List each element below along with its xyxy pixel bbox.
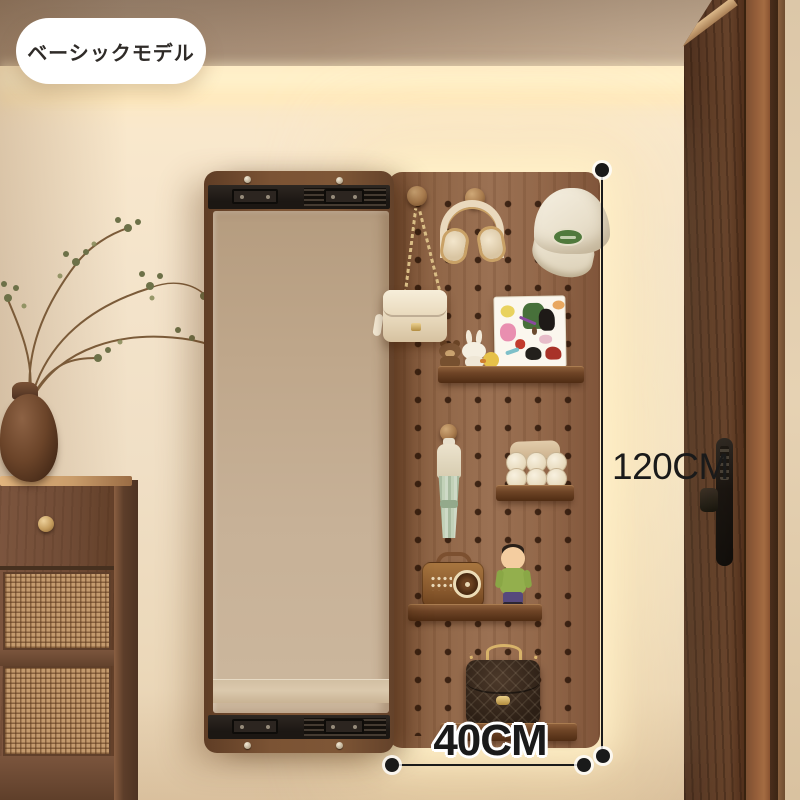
dimension-endpoint-dot bbox=[385, 758, 399, 772]
mirror-rail-top bbox=[208, 185, 390, 209]
cabinet-knob bbox=[38, 516, 54, 532]
umbrella-strap bbox=[440, 500, 458, 508]
rail-bracket bbox=[232, 719, 278, 734]
entry-door bbox=[678, 0, 800, 800]
handbag-flap bbox=[383, 290, 447, 317]
cabinet-drawer-groove bbox=[0, 566, 114, 570]
quilted-handbag-flap bbox=[466, 666, 540, 694]
mirror-rail-bottom bbox=[208, 715, 390, 739]
mirror-glass bbox=[213, 211, 389, 713]
mirror-reflection-skirting bbox=[213, 679, 389, 703]
cabinet-rail bbox=[0, 650, 114, 666]
doodle-teal-stroke bbox=[505, 347, 520, 355]
cap-logo-patch bbox=[552, 228, 584, 246]
screw bbox=[244, 176, 251, 183]
model-badge-label: ベーシックモデル bbox=[27, 37, 195, 66]
rail-bracket bbox=[324, 719, 364, 734]
cabinet-rattan-panel bbox=[3, 572, 111, 650]
doodle-trunk bbox=[532, 327, 537, 335]
model-badge: ベーシックモデル bbox=[16, 18, 206, 84]
cabinet-side bbox=[114, 480, 138, 800]
pegboard-shelf bbox=[438, 366, 584, 383]
door-stile bbox=[770, 0, 778, 800]
handbag-clasp bbox=[411, 323, 421, 331]
cabinet-bottom bbox=[0, 756, 114, 800]
doodle-flower bbox=[500, 323, 516, 341]
screw bbox=[336, 177, 343, 184]
quilted-handbag-clasp bbox=[496, 696, 510, 705]
doodle-dog bbox=[545, 346, 561, 359]
dimension-endpoint-dot bbox=[596, 749, 610, 763]
rail-bracket bbox=[232, 189, 278, 204]
doodle-sun bbox=[501, 305, 515, 317]
door-jamb bbox=[778, 0, 785, 800]
folded-umbrella-top bbox=[437, 444, 461, 478]
radio-dial bbox=[453, 570, 481, 598]
door-handle bbox=[700, 488, 718, 512]
doodle-arch bbox=[539, 335, 552, 344]
vase bbox=[0, 394, 58, 482]
vintage-radio bbox=[422, 562, 484, 608]
rail-bracket bbox=[324, 189, 364, 204]
wooden-hook bbox=[407, 186, 427, 206]
cabinet-rattan-panel bbox=[3, 666, 111, 756]
product-photo-scene: 120CM 40CM ベーシックモデル bbox=[0, 0, 800, 800]
door-panel bbox=[744, 0, 770, 800]
width-dimension-label: 40CM bbox=[428, 719, 552, 763]
toy-figure bbox=[501, 547, 525, 570]
radio-speaker-grille bbox=[430, 575, 452, 591]
pegboard-shelf bbox=[408, 604, 542, 621]
screw bbox=[336, 742, 343, 749]
sliding-mirror bbox=[204, 171, 394, 753]
toy-figure-shirt bbox=[500, 568, 526, 594]
wall-beside-door bbox=[785, 0, 800, 800]
doodle-crescent bbox=[552, 300, 564, 309]
door-slab bbox=[684, 0, 744, 800]
quilted-bag-chain bbox=[486, 644, 522, 660]
screw bbox=[244, 742, 251, 749]
height-dimension-label: 120CM bbox=[612, 448, 729, 485]
dimension-endpoint-dot bbox=[595, 163, 609, 177]
pegboard-shelf bbox=[496, 485, 574, 501]
height-dimension-line bbox=[601, 172, 603, 754]
illustrated-art-board bbox=[493, 295, 566, 368]
dimension-endpoint-dot bbox=[577, 758, 591, 772]
doodle-cat bbox=[525, 347, 541, 360]
doodle-giraffe bbox=[539, 309, 555, 331]
cream-handbag bbox=[383, 290, 447, 342]
